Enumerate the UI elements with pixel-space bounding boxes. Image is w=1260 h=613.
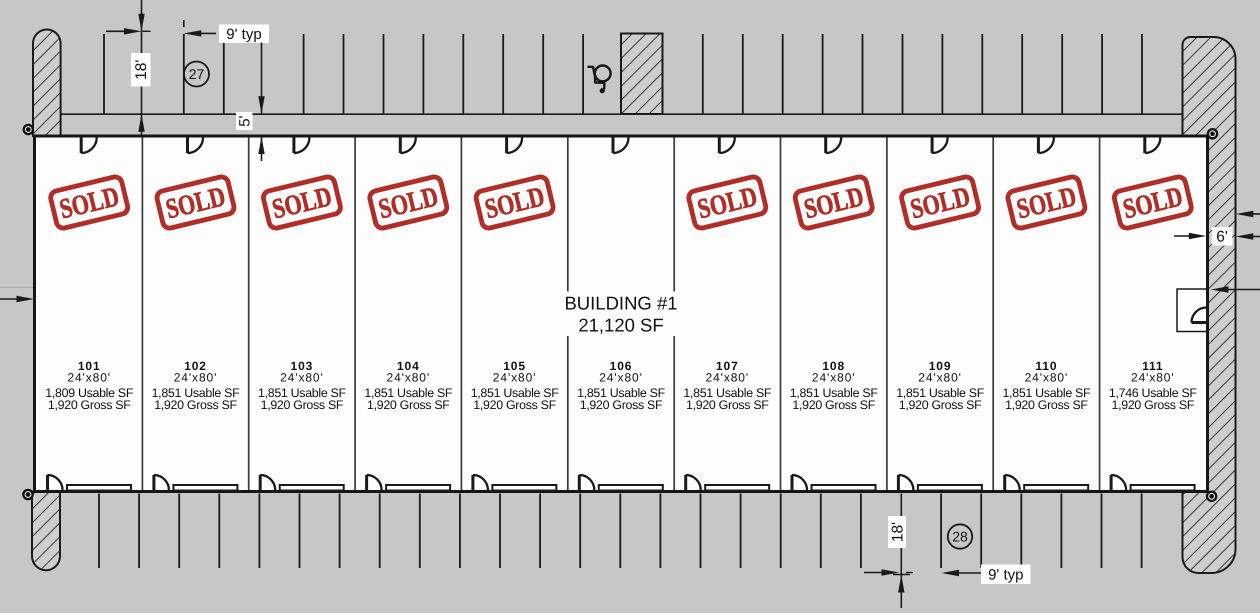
svg-text:1,920 Gross SF: 1,920 Gross SF (48, 398, 131, 412)
svg-text:28: 28 (952, 529, 968, 545)
svg-text:1,920 Gross SF: 1,920 Gross SF (367, 398, 450, 412)
svg-text:1,920 Gross SF: 1,920 Gross SF (1005, 398, 1088, 412)
svg-text:18': 18' (890, 522, 907, 542)
svg-text:6': 6' (1216, 229, 1228, 246)
svg-text:1,920 Gross SF: 1,920 Gross SF (154, 398, 237, 412)
svg-text:27: 27 (189, 66, 205, 82)
svg-text:24'x80': 24'x80' (1131, 371, 1175, 385)
svg-text:1,920 Gross SF: 1,920 Gross SF (580, 398, 663, 412)
svg-text:24'x80': 24'x80' (280, 371, 324, 385)
svg-text:1,920 Gross SF: 1,920 Gross SF (899, 398, 982, 412)
svg-text:1,920 Gross SF: 1,920 Gross SF (686, 398, 769, 412)
svg-text:24'x80': 24'x80' (918, 371, 962, 385)
svg-text:24'x80': 24'x80' (812, 371, 856, 385)
svg-text:1,920 Gross SF: 1,920 Gross SF (261, 398, 344, 412)
svg-text:24'x80': 24'x80' (493, 371, 537, 385)
svg-text:9' typ: 9' typ (226, 26, 261, 43)
svg-text:9' typ: 9' typ (988, 567, 1023, 584)
svg-text:24'x80': 24'x80' (599, 371, 643, 385)
svg-text:5': 5' (236, 115, 253, 126)
svg-text:24'x80': 24'x80' (174, 371, 218, 385)
svg-text:BUILDING #1: BUILDING #1 (564, 293, 677, 314)
svg-text:24'x80': 24'x80' (387, 371, 431, 385)
svg-text:1,920 Gross SF: 1,920 Gross SF (1112, 398, 1195, 412)
svg-text:21,120 SF: 21,120 SF (578, 315, 663, 336)
svg-text:24'x80': 24'x80' (706, 371, 750, 385)
svg-text:24'x80': 24'x80' (1025, 371, 1069, 385)
svg-text:24'x80': 24'x80' (67, 371, 111, 385)
svg-text:1,920 Gross SF: 1,920 Gross SF (473, 398, 556, 412)
svg-text:18': 18' (133, 60, 150, 80)
svg-text:1,920 Gross SF: 1,920 Gross SF (792, 398, 875, 412)
